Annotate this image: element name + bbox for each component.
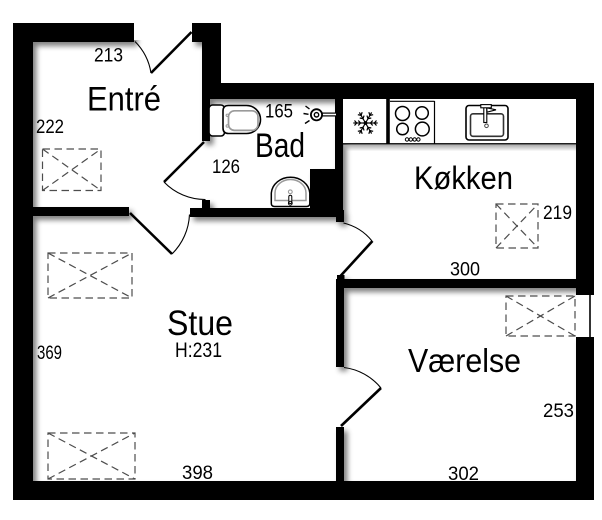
svg-text:302: 302 xyxy=(448,464,479,485)
svg-text:300: 300 xyxy=(450,260,480,281)
svg-text:Entré: Entré xyxy=(87,81,161,119)
svg-text:Værelse: Værelse xyxy=(408,342,521,379)
svg-text:222: 222 xyxy=(36,117,64,138)
svg-text:165: 165 xyxy=(265,102,293,123)
svg-text:369: 369 xyxy=(37,343,62,364)
svg-text:253: 253 xyxy=(543,401,574,422)
svg-text:Stue: Stue xyxy=(167,304,233,343)
svg-text:Bad: Bad xyxy=(255,127,305,165)
svg-text:126: 126 xyxy=(212,157,240,178)
svg-text:213: 213 xyxy=(94,46,123,67)
svg-text:Køkken: Køkken xyxy=(414,160,513,196)
svg-text:398: 398 xyxy=(182,463,213,484)
svg-text:H:231: H:231 xyxy=(175,339,222,362)
svg-text:219: 219 xyxy=(543,203,572,224)
